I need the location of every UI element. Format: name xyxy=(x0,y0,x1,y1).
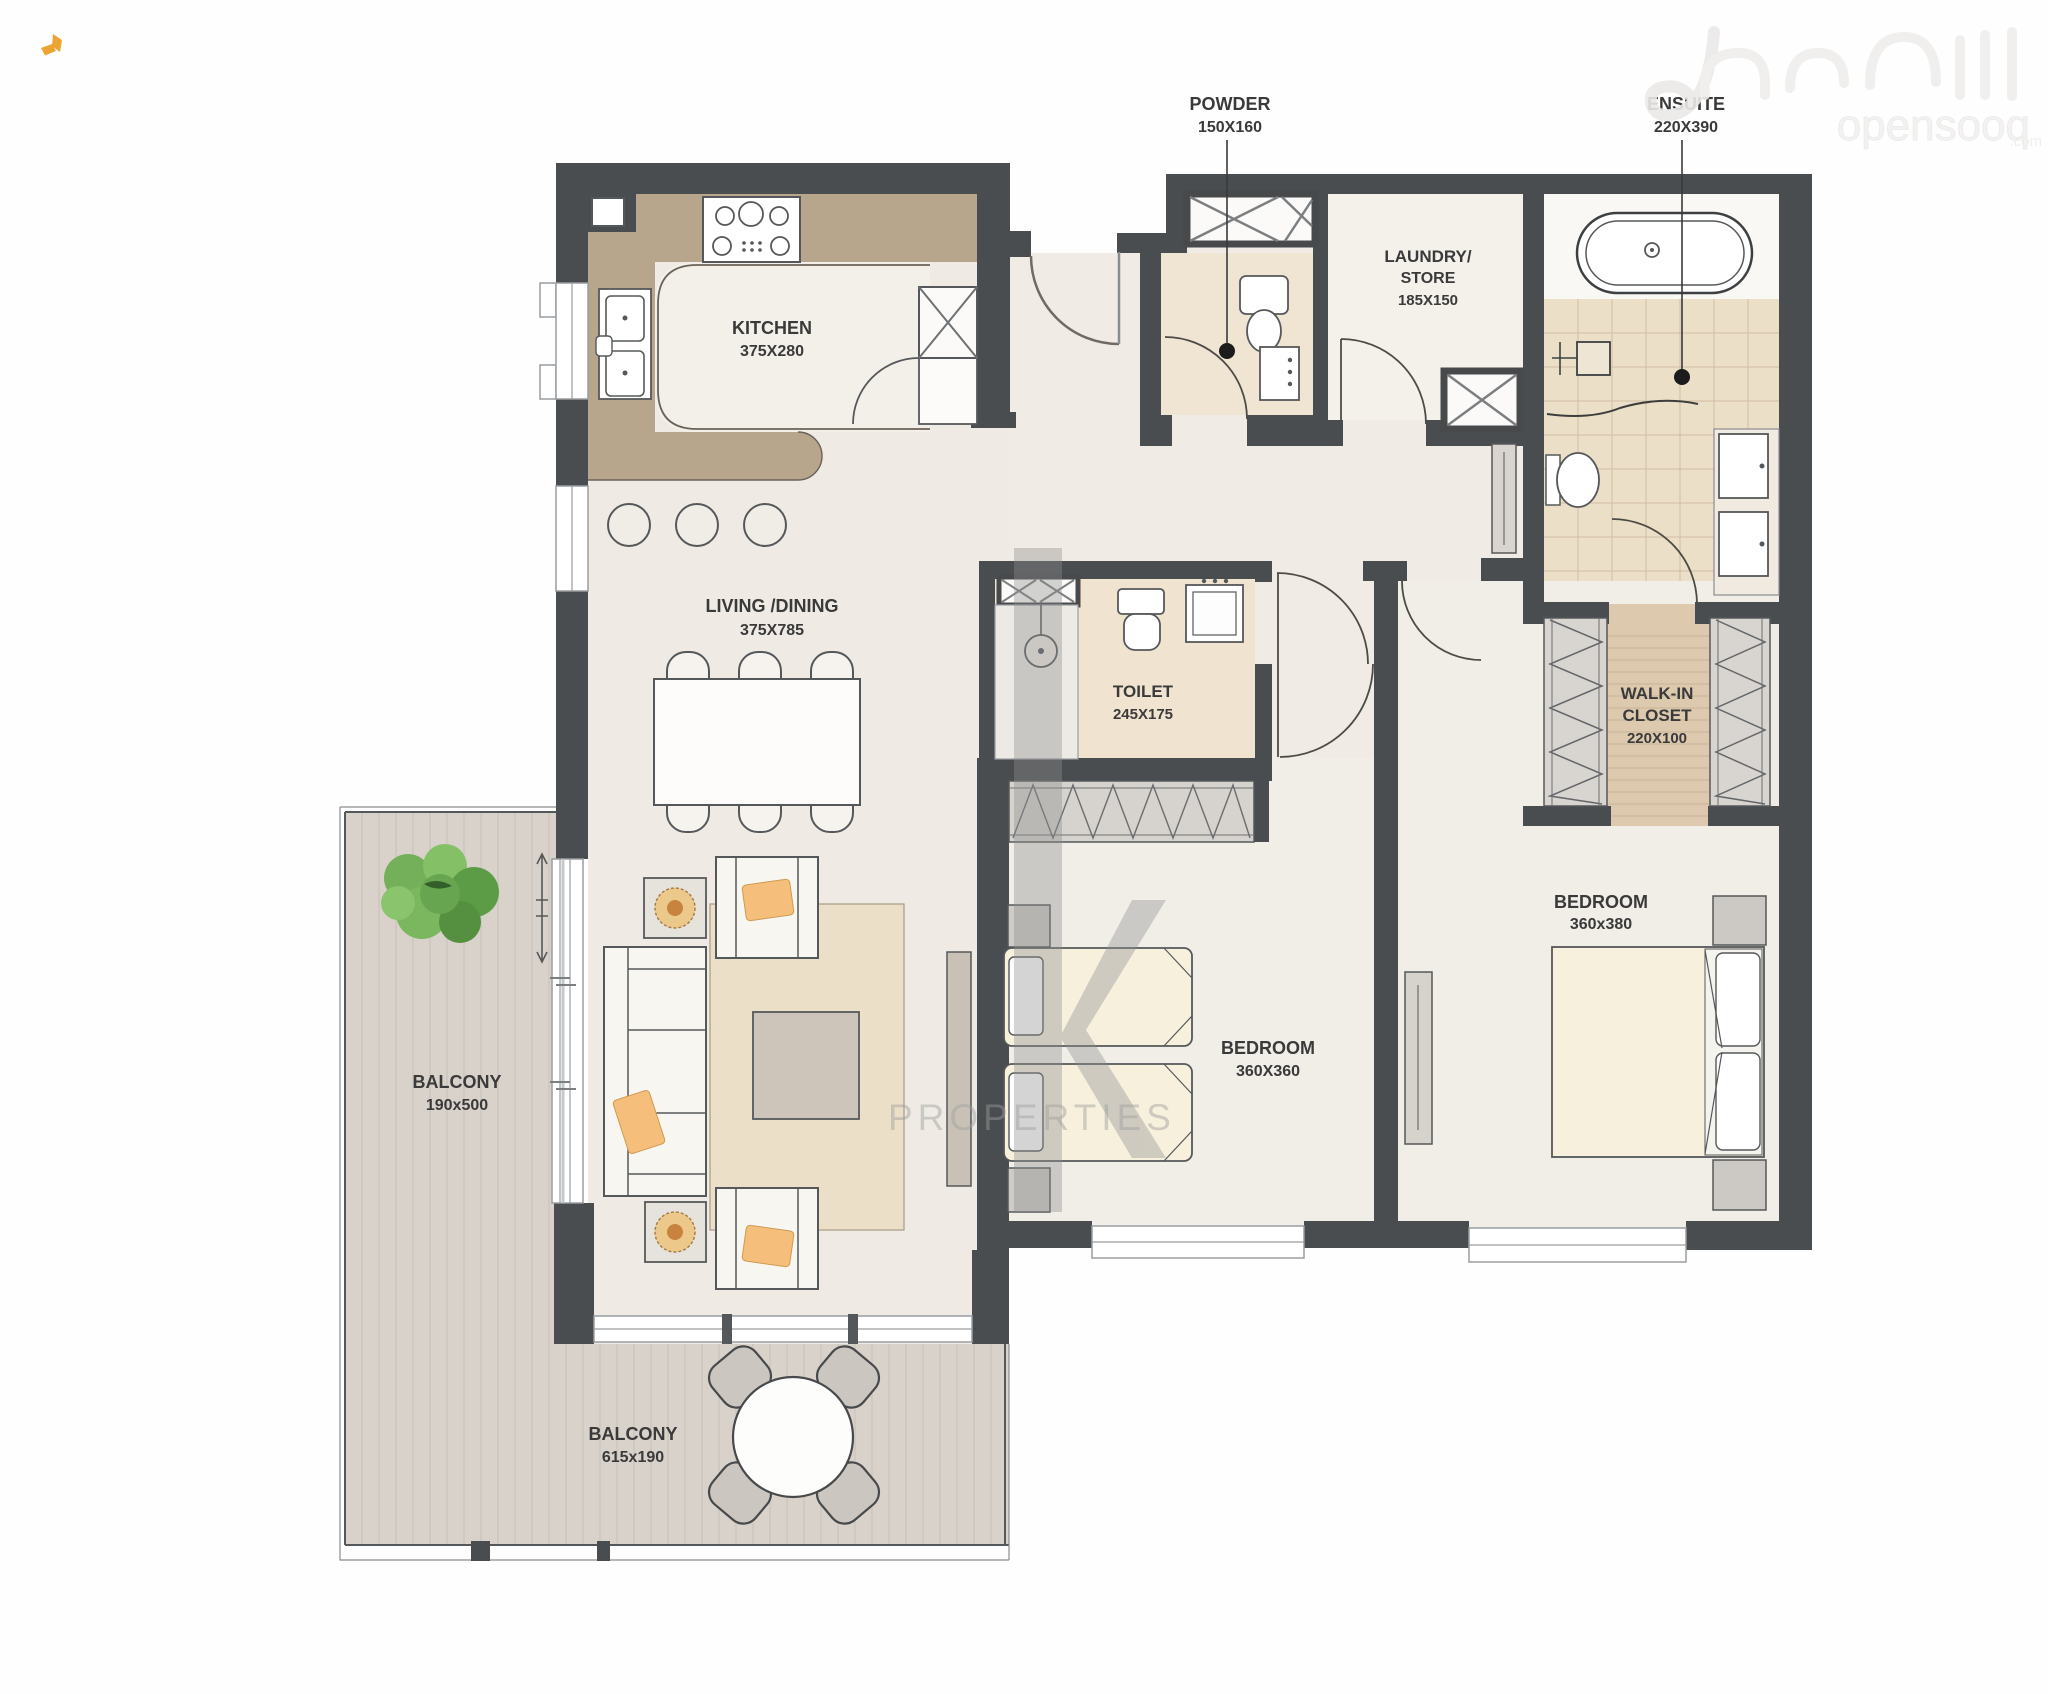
svg-text:STORE: STORE xyxy=(1401,270,1456,287)
svg-text:375X280: 375X280 xyxy=(740,343,804,360)
svg-text:TOILET: TOILET xyxy=(1113,682,1174,701)
svg-text:360X360: 360X360 xyxy=(1236,1063,1300,1080)
svg-text:opensooq: opensooq xyxy=(1837,101,2030,150)
svg-text:220X100: 220X100 xyxy=(1627,730,1687,747)
svg-text:.com: .com xyxy=(2009,133,2042,150)
svg-text:BEDROOM: BEDROOM xyxy=(1554,892,1648,912)
svg-text:PROPERTIES: PROPERTIES xyxy=(888,1097,1176,1138)
svg-text:BEDROOM: BEDROOM xyxy=(1221,1038,1315,1058)
svg-text:KITCHEN: KITCHEN xyxy=(732,318,812,338)
svg-text:LIVING /DINING: LIVING /DINING xyxy=(705,596,838,616)
svg-text:360x380: 360x380 xyxy=(1570,916,1632,933)
svg-text:190x500: 190x500 xyxy=(426,1097,488,1114)
svg-text:150X160: 150X160 xyxy=(1198,119,1262,136)
svg-text:BALCONY: BALCONY xyxy=(589,1424,678,1444)
svg-text:185X150: 185X150 xyxy=(1398,292,1458,309)
svg-text:220X390: 220X390 xyxy=(1654,119,1718,136)
svg-text:LAUNDRY/: LAUNDRY/ xyxy=(1384,247,1471,266)
svg-text:245X175: 245X175 xyxy=(1113,706,1173,723)
svg-text:BALCONY: BALCONY xyxy=(413,1072,502,1092)
svg-text:615x190: 615x190 xyxy=(602,1449,664,1466)
svg-text:WALK-IN: WALK-IN xyxy=(1621,684,1694,703)
svg-text:375X785: 375X785 xyxy=(740,622,804,639)
svg-text:POWDER: POWDER xyxy=(1190,94,1271,114)
svg-text:CLOSET: CLOSET xyxy=(1623,706,1693,725)
